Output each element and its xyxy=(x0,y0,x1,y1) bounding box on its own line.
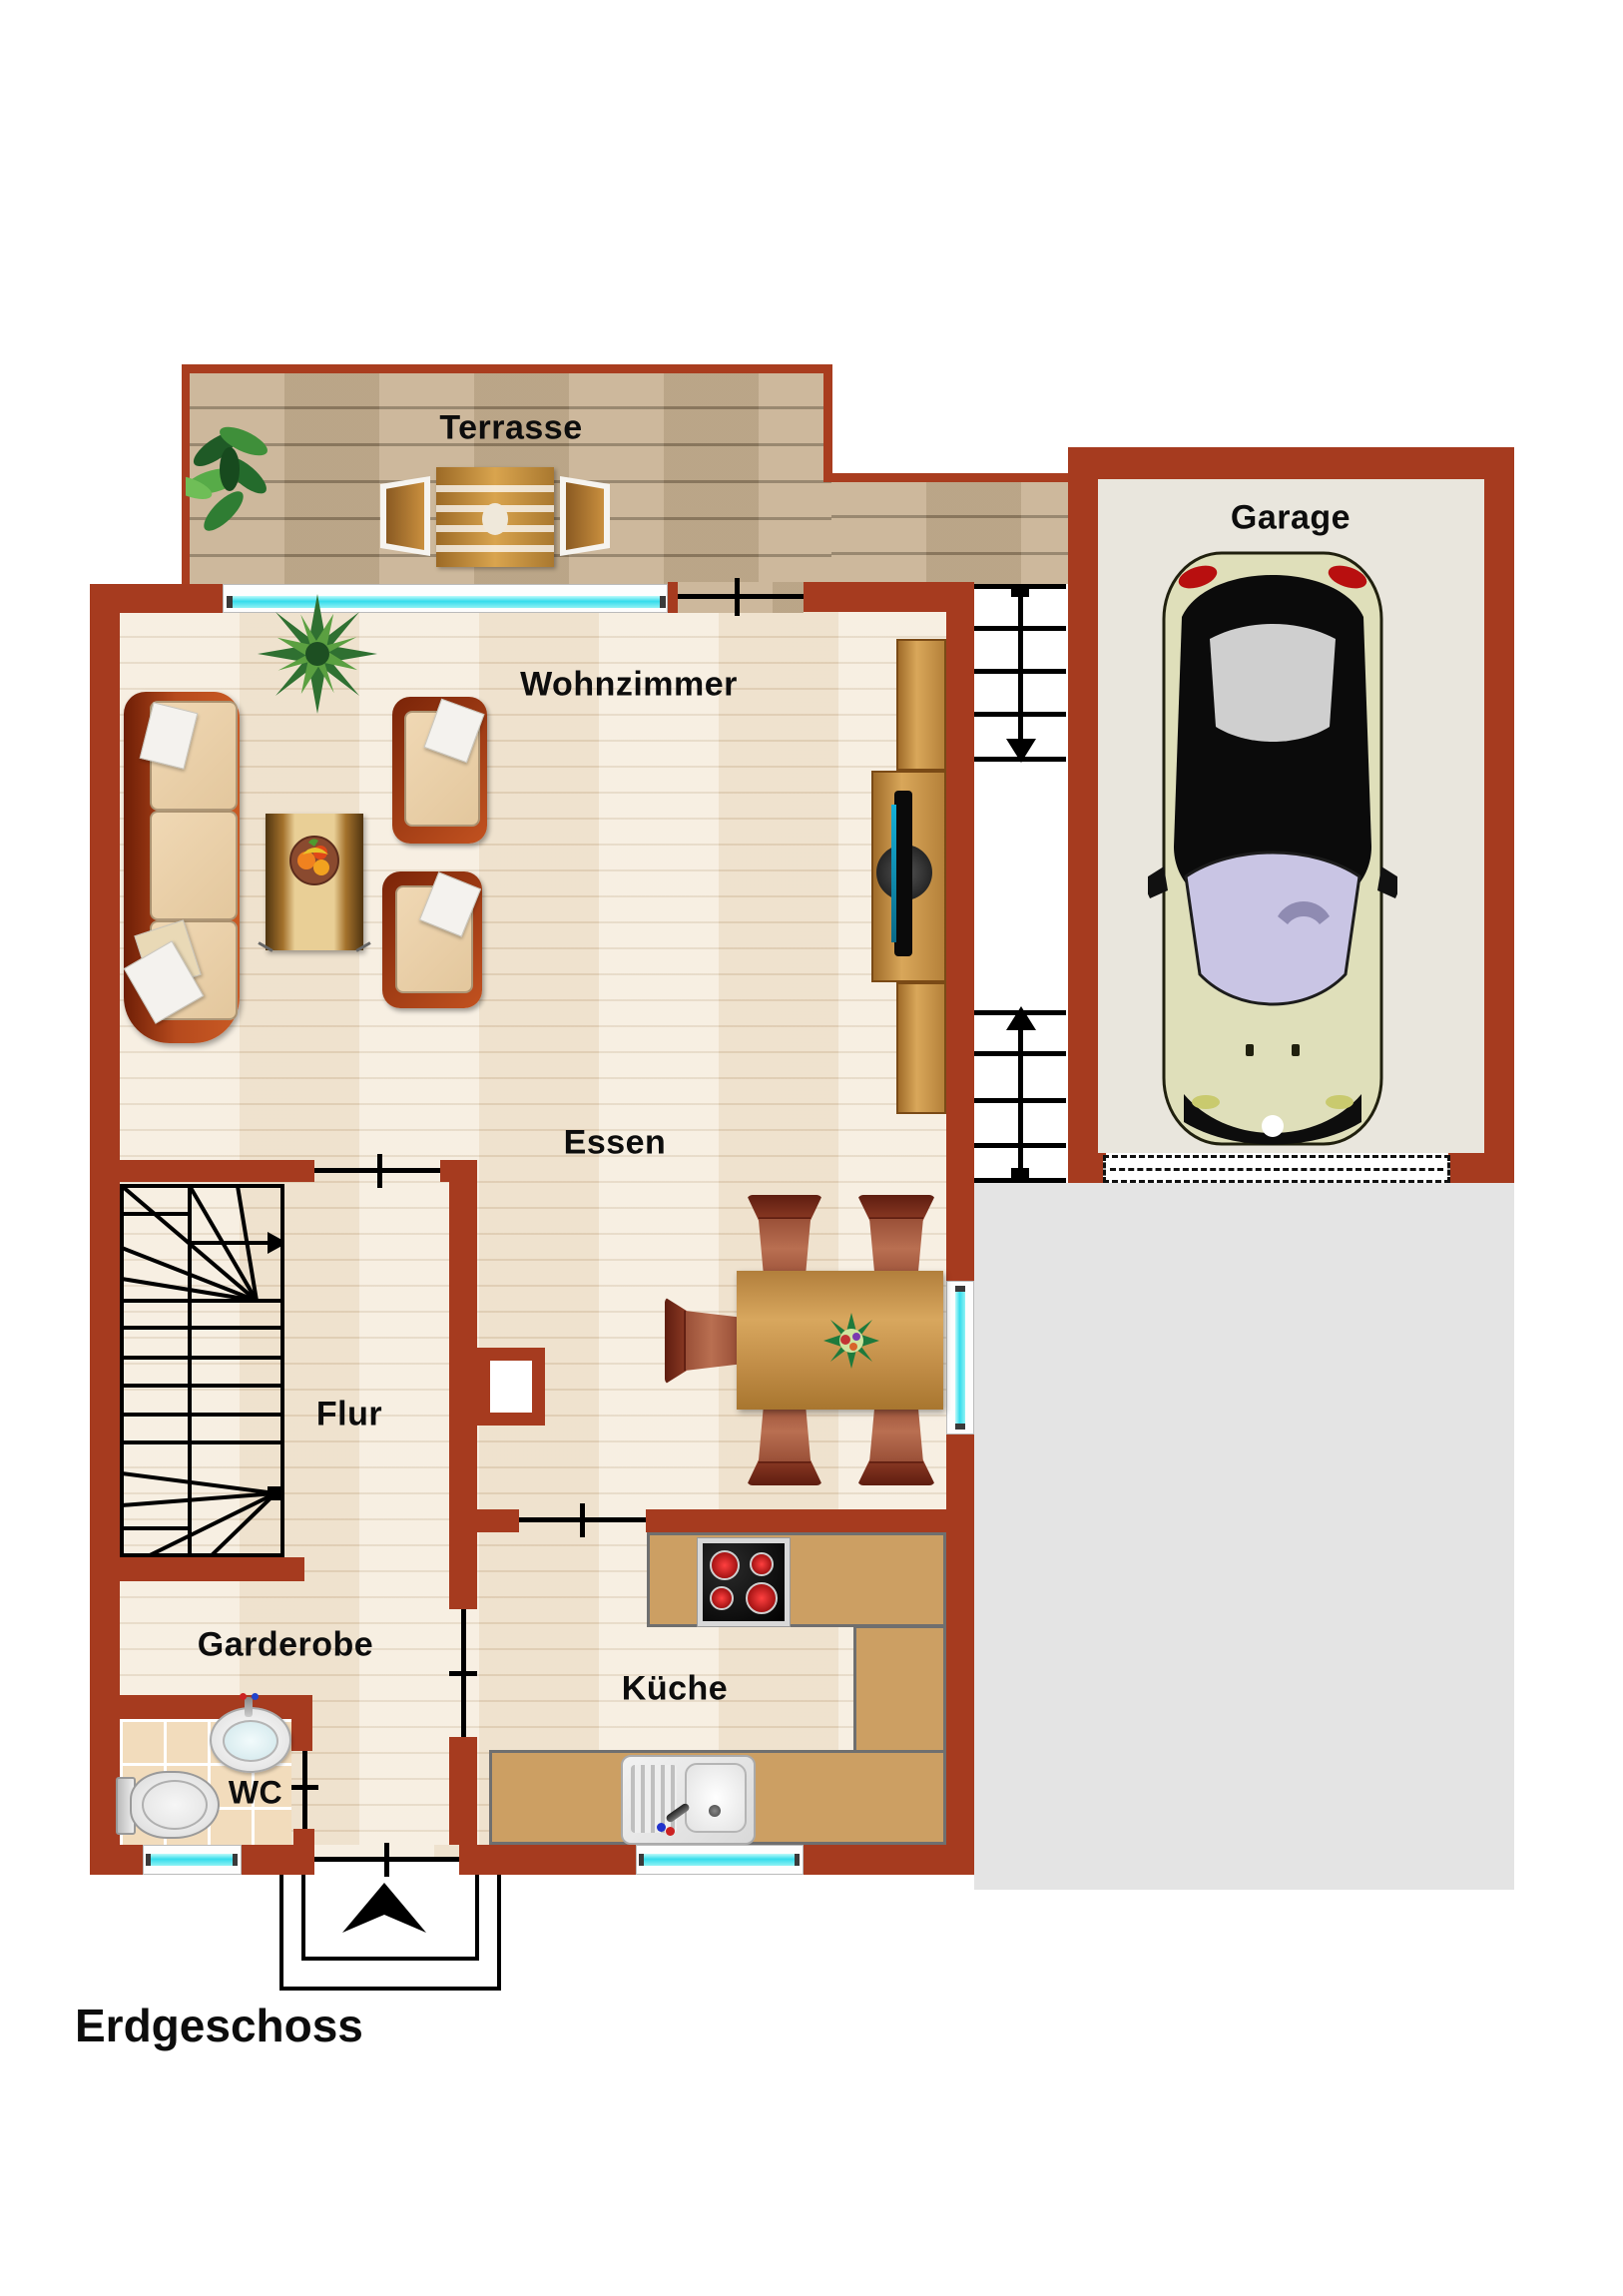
wall-bottom-3 xyxy=(459,1845,636,1875)
kitchen-sink-basin xyxy=(685,1763,747,1833)
fruit-bowl-icon xyxy=(288,835,340,886)
dining-chair xyxy=(861,1195,931,1281)
stove-burner xyxy=(750,1552,774,1576)
wc-window-glass xyxy=(150,1854,235,1866)
terrace-chair-left xyxy=(380,476,430,556)
room-label-essen: Essen xyxy=(564,1124,667,1163)
wall-flur-essen-3 xyxy=(449,1426,477,1609)
wc-sink-faucet-icon xyxy=(245,1697,253,1717)
dining-chair xyxy=(665,1302,739,1380)
wall-right-lower xyxy=(946,1435,974,1845)
stair-arrow-up-icon xyxy=(1006,1006,1036,1030)
stove xyxy=(697,1537,791,1627)
wall-garderobe xyxy=(120,1557,304,1581)
dining-chair xyxy=(751,1400,818,1485)
door-living-flur-tick xyxy=(377,1154,382,1188)
wall-wc-jamb xyxy=(293,1829,314,1845)
terrace-border-top-right xyxy=(823,473,1068,482)
kitchen-counter-right xyxy=(853,1625,946,1753)
room-label-flur: Flur xyxy=(316,1396,382,1435)
terrace-window-line xyxy=(678,594,804,599)
wall-flur-essen-1 xyxy=(449,1182,477,1348)
door-wc-tick xyxy=(290,1785,318,1790)
garage-wall-bottom-left xyxy=(1068,1153,1106,1183)
terrace-plant-icon xyxy=(186,419,275,539)
sideboard-lower xyxy=(896,982,946,1114)
terrace-border-top xyxy=(182,364,831,373)
stove-burner xyxy=(710,1550,740,1580)
garage-door xyxy=(1103,1155,1450,1183)
wall-bottom-4 xyxy=(804,1845,974,1875)
wall-essen-kueche xyxy=(646,1509,946,1532)
terrace-chair-right xyxy=(560,476,610,556)
kitchen-sink-drain xyxy=(709,1805,721,1817)
terrace-border-step xyxy=(823,364,832,476)
interior-staircase xyxy=(120,1184,284,1557)
chimney-niche xyxy=(490,1361,532,1413)
wall-right-upper xyxy=(946,582,974,1281)
wall-left xyxy=(90,584,120,1875)
sofa-cushion xyxy=(150,811,238,920)
wall-kueche-stub xyxy=(477,1509,519,1532)
door-essen-kueche-tick xyxy=(580,1503,585,1537)
wall-wc-top xyxy=(120,1695,312,1719)
stair-arrow-down-icon xyxy=(1006,739,1036,763)
wall-bottom-2 xyxy=(242,1845,314,1875)
door-wc xyxy=(302,1751,307,1835)
kitchen-window-glass xyxy=(643,1854,797,1866)
wc-toilet-seat xyxy=(142,1780,208,1830)
terrace-window-tick xyxy=(735,578,740,616)
floor-plan-canvas: Terrasse xyxy=(0,0,1623,2296)
wall-flur-essen-2 xyxy=(449,1348,477,1426)
kitchen-sink-drainboard xyxy=(631,1765,677,1833)
wall-bottom-1 xyxy=(90,1845,143,1875)
garage-wall-left xyxy=(1068,447,1098,1183)
kitchen-counter-top xyxy=(647,1532,946,1627)
tv-screen-glint xyxy=(891,805,896,942)
wall-stub-top xyxy=(668,582,678,613)
room-label-terrasse: Terrasse xyxy=(439,409,582,448)
dining-window-glass xyxy=(955,1290,965,1426)
sideboard-upper xyxy=(896,639,946,771)
room-label-garderobe: Garderobe xyxy=(198,1626,373,1665)
entrance-arrow-icon xyxy=(342,1883,426,1933)
stove-burner xyxy=(746,1582,778,1614)
entrance-door-tick xyxy=(384,1843,389,1877)
car-icon xyxy=(1148,547,1397,1151)
wc-sink-basin xyxy=(223,1720,278,1762)
wall-wc-right xyxy=(289,1695,312,1751)
door-flur-kueche-tick xyxy=(449,1671,477,1676)
driveway xyxy=(974,1183,1514,1890)
living-plant-icon xyxy=(256,592,379,716)
wall-living-flur xyxy=(120,1160,314,1182)
terrace-deck-right xyxy=(831,481,1068,584)
dining-chair xyxy=(751,1195,818,1281)
tv-screen xyxy=(894,791,912,956)
wall-top-right xyxy=(804,582,946,612)
stove-burner xyxy=(710,1586,734,1610)
room-label-garage: Garage xyxy=(1231,499,1351,538)
garage-wall-top xyxy=(1068,447,1514,479)
wall-top-left xyxy=(90,584,223,613)
terrace-table xyxy=(436,467,554,567)
room-label-kueche: Küche xyxy=(622,1670,728,1709)
room-label-wohnzimmer: Wohnzimmer xyxy=(520,666,738,705)
wall-flur-kueche-low xyxy=(449,1737,477,1845)
room-label-wc: WC xyxy=(229,1775,282,1812)
dining-chair xyxy=(861,1400,931,1485)
dining-flower-icon xyxy=(822,1312,880,1370)
wall-corner-flur xyxy=(440,1160,477,1182)
plan-title: Erdgeschoss xyxy=(75,1999,363,2052)
garage-wall-right xyxy=(1484,447,1514,1183)
kitchen-sink xyxy=(621,1755,756,1845)
garage-wall-bottom-right xyxy=(1448,1153,1514,1183)
